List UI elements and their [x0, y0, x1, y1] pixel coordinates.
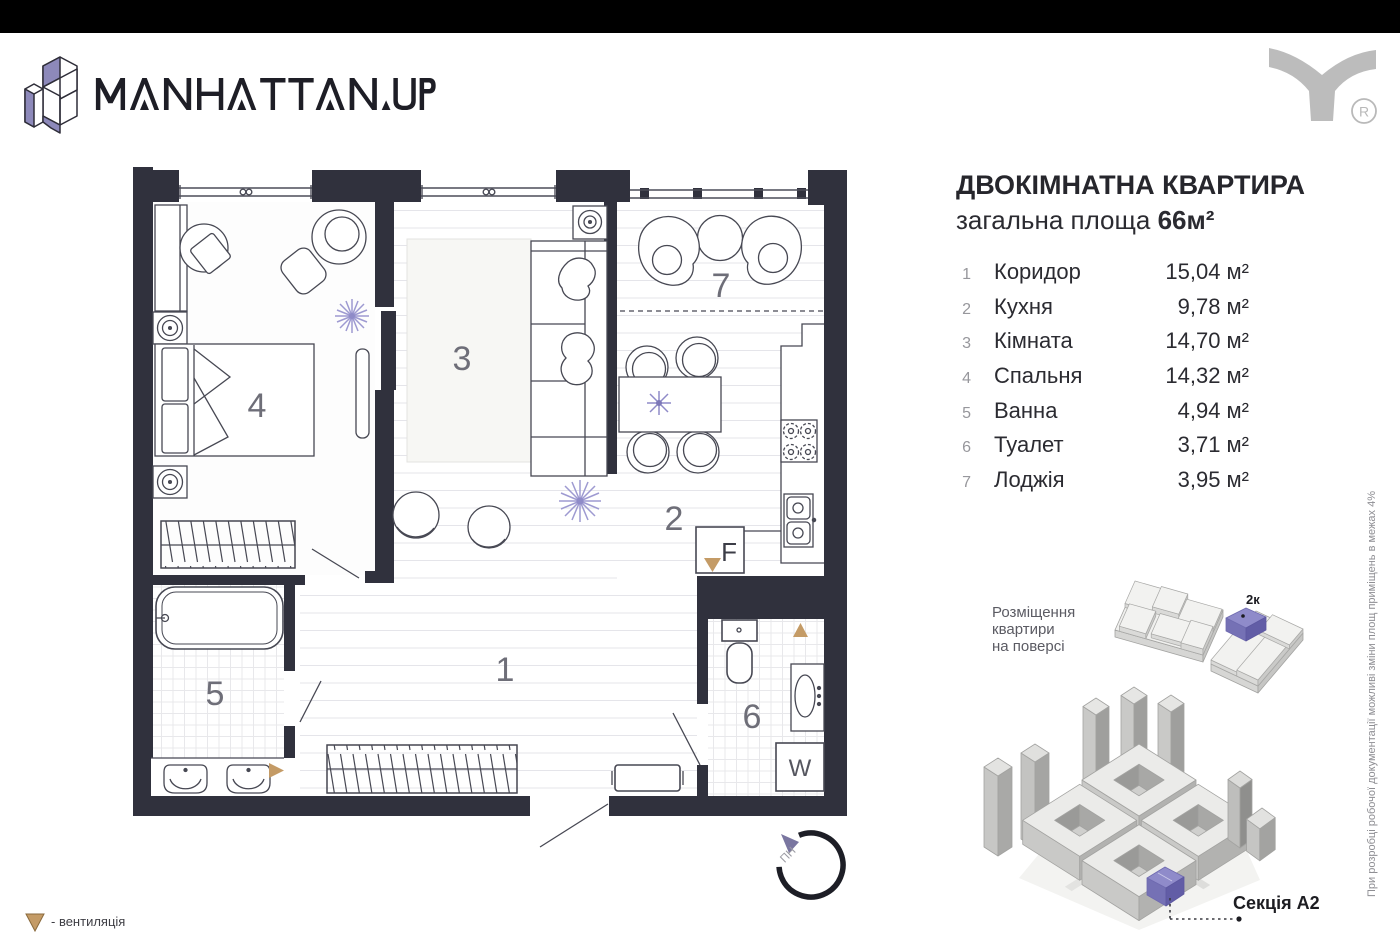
svg-text:W: W	[789, 755, 812, 782]
svg-text:1: 1	[496, 651, 515, 689]
svg-text:2: 2	[665, 500, 684, 538]
svg-text:4: 4	[248, 387, 267, 425]
svg-text:6: 6	[743, 698, 762, 736]
svg-text:7: 7	[712, 267, 731, 305]
svg-text:2к: 2к	[1246, 592, 1260, 607]
svg-text:5: 5	[206, 675, 225, 713]
svg-text:3: 3	[453, 340, 472, 378]
svg-text:ПН: ПН	[778, 845, 798, 865]
svg-text:F: F	[721, 537, 737, 567]
